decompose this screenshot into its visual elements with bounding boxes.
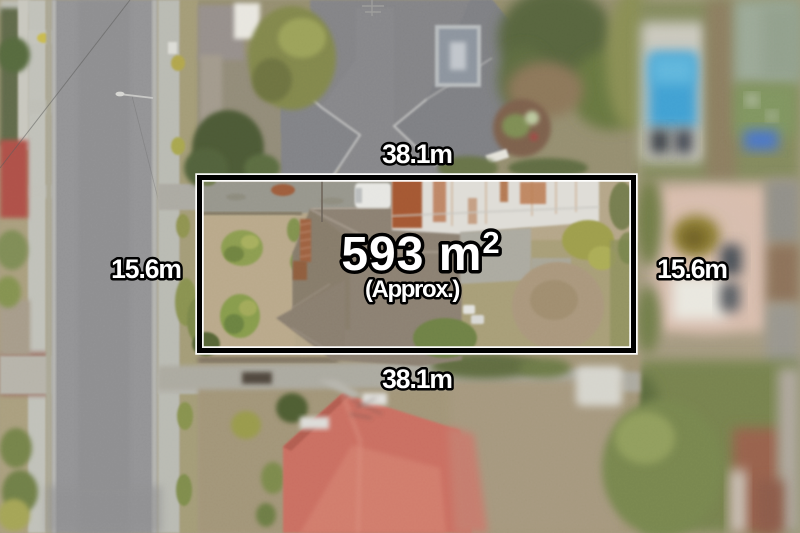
svg-text:(Approx.): (Approx.) (365, 276, 459, 303)
svg-text:15.6m: 15.6m (111, 254, 181, 284)
svg-text:38.1m: 38.1m (382, 139, 452, 169)
svg-text:593 m2: 593 m2 (341, 225, 500, 281)
svg-text:15.6m: 15.6m (657, 254, 727, 284)
svg-text:38.1m: 38.1m (382, 364, 452, 394)
